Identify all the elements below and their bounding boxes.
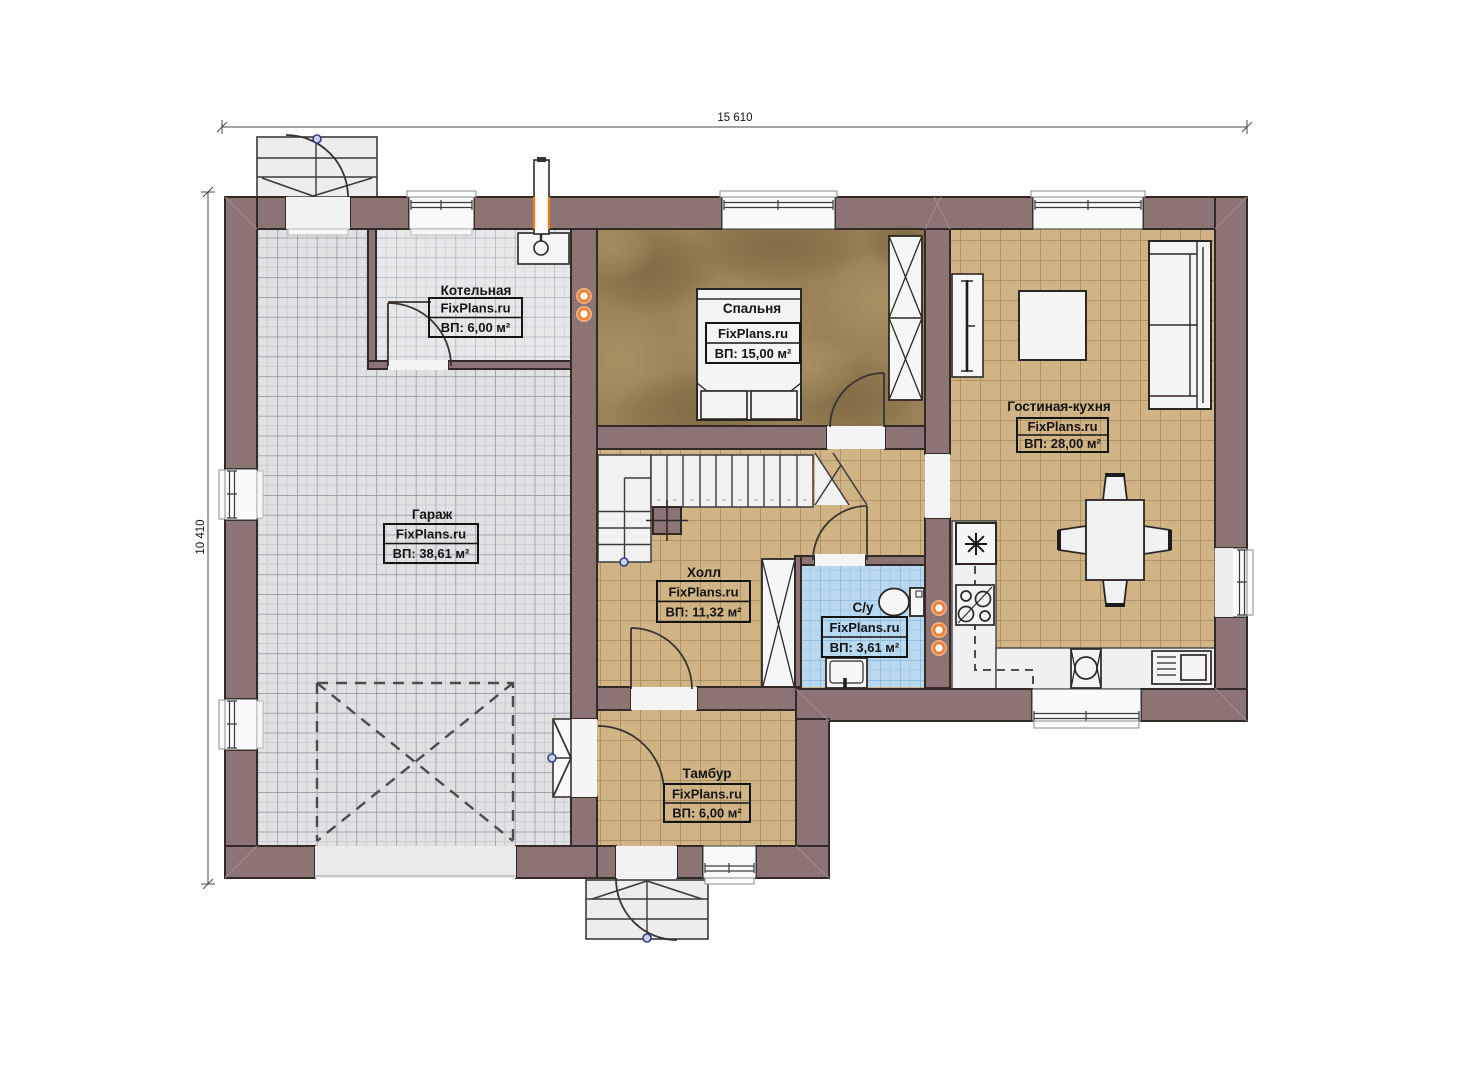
svg-text:Гараж: Гараж: [412, 507, 453, 522]
svg-text:FixPlans.ru: FixPlans.ru: [829, 620, 899, 635]
svg-text:FixPlans.ru: FixPlans.ru: [668, 585, 738, 600]
svg-text:FixPlans.ru: FixPlans.ru: [440, 301, 510, 316]
svg-text:Спальня: Спальня: [723, 301, 781, 316]
svg-text:ВП: 6,00 м²: ВП: 6,00 м²: [441, 320, 511, 335]
svg-text:Котельная: Котельная: [441, 283, 512, 298]
svg-text:ВП: 38,61 м²: ВП: 38,61 м²: [393, 546, 470, 561]
svg-text:С/у: С/у: [852, 600, 874, 615]
svg-text:15 610: 15 610: [717, 112, 752, 124]
svg-text:ВП: 6,00 м²: ВП: 6,00 м²: [672, 806, 742, 821]
svg-text:Гостиная-кухня: Гостиная-кухня: [1007, 399, 1110, 414]
svg-text:ВП: 11,32 м²: ВП: 11,32 м²: [665, 605, 742, 620]
svg-text:10 410: 10 410: [195, 519, 207, 554]
svg-text:FixPlans.ru: FixPlans.ru: [1027, 419, 1097, 434]
svg-text:FixPlans.ru: FixPlans.ru: [718, 326, 788, 341]
svg-text:FixPlans.ru: FixPlans.ru: [396, 527, 466, 542]
svg-text:ВП: 15,00 м²: ВП: 15,00 м²: [715, 346, 792, 361]
svg-text:Тамбур: Тамбур: [683, 766, 732, 781]
svg-text:Холл: Холл: [687, 565, 721, 580]
svg-text:FixPlans.ru: FixPlans.ru: [672, 787, 742, 802]
svg-text:ВП: 3,61 м²: ВП: 3,61 м²: [830, 640, 900, 655]
svg-text:ВП: 28,00 м²: ВП: 28,00 м²: [1024, 436, 1101, 451]
